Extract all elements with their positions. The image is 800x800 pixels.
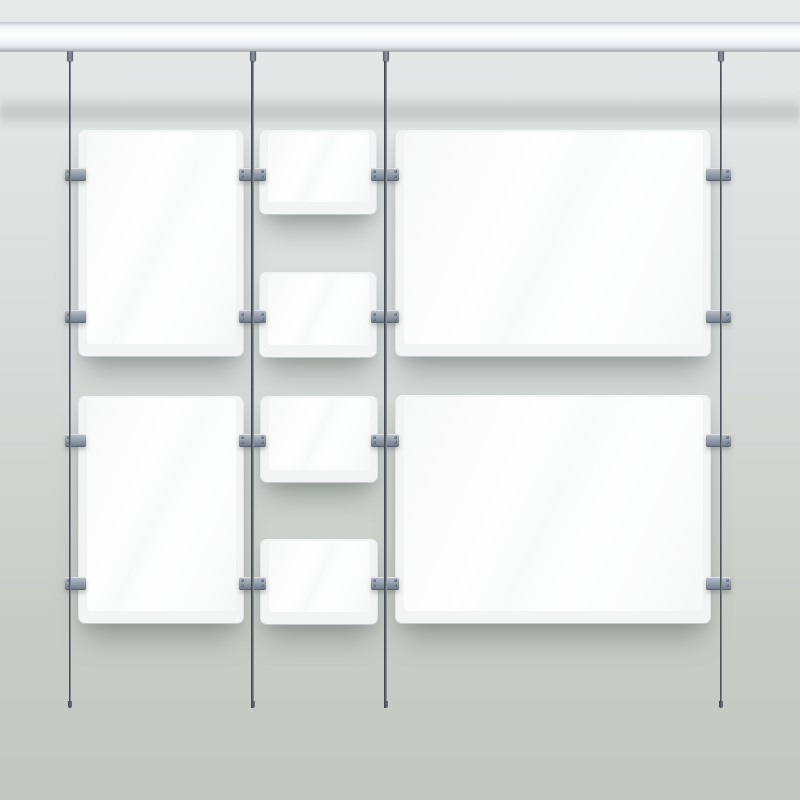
clamp-bolt xyxy=(726,318,729,321)
poster-sheet xyxy=(269,541,370,612)
clamp-bolt xyxy=(261,441,264,444)
poster-panel-left-portrait-top xyxy=(78,130,245,357)
clamp-bolt xyxy=(373,170,376,173)
poster-panel-right-landscape-top xyxy=(395,130,712,357)
clamp-bolt xyxy=(373,318,376,321)
rod-end-cap xyxy=(719,701,723,708)
rod-top-fitting xyxy=(383,50,389,61)
clamp-bolt xyxy=(394,175,397,178)
clamp-bolt xyxy=(394,436,397,439)
poster-sheet xyxy=(404,397,704,611)
clamp-bolt xyxy=(241,170,244,173)
suspension-rod xyxy=(384,50,387,708)
clamp-bolt xyxy=(241,318,244,321)
rod-end-cap xyxy=(68,701,72,708)
clamp-bolt xyxy=(241,313,244,316)
poster-sheet xyxy=(268,132,369,202)
clamp-bolt xyxy=(394,170,397,173)
poster-panel-center-small-3 xyxy=(260,396,378,483)
poster-panel-center-small-2 xyxy=(259,272,377,359)
clamp-bolt xyxy=(261,318,264,321)
clamp-bolt xyxy=(261,170,264,173)
clamp-bolt xyxy=(726,313,729,316)
suspension-rod xyxy=(69,50,72,708)
suspension-rod xyxy=(720,50,723,708)
clamp-bolt xyxy=(261,436,264,439)
clamp-bolt xyxy=(373,175,376,178)
clamp-bolt xyxy=(394,584,397,587)
poster-sheet xyxy=(269,398,370,470)
clamp-bolt xyxy=(261,313,264,316)
clamp-bolt xyxy=(726,436,729,439)
poster-panel-right-landscape-bottom xyxy=(395,395,712,624)
clamp-bolt xyxy=(394,579,397,582)
clamp-bolt xyxy=(261,175,264,178)
rod-top-fitting xyxy=(250,50,256,61)
poster-sheet xyxy=(87,132,237,344)
clamp-bolt xyxy=(373,579,376,582)
clamp-bolt xyxy=(373,436,376,439)
rod-clamp xyxy=(706,434,731,447)
clamp-bolt xyxy=(261,579,264,582)
rod-top-fitting xyxy=(718,50,724,61)
rod-clamp xyxy=(706,168,731,181)
ceiling-rail xyxy=(0,22,800,51)
clamp-bolt xyxy=(394,318,397,321)
suspension-rod xyxy=(251,50,254,708)
poster-sheet xyxy=(268,274,369,346)
clamp-bolt xyxy=(373,441,376,444)
clamp-bolt xyxy=(373,313,376,316)
clamp-bolt xyxy=(726,579,729,582)
clamp-bolt xyxy=(726,175,729,178)
clamp-bolt xyxy=(373,584,376,587)
rail-shadow-band xyxy=(0,95,800,128)
clamp-bolt xyxy=(726,584,729,587)
rod-clamp xyxy=(706,577,731,590)
clamp-bolt xyxy=(241,436,244,439)
poster-panel-center-small-4 xyxy=(260,539,378,625)
poster-panel-left-portrait-bottom xyxy=(78,396,245,624)
rod-clamp xyxy=(706,310,731,323)
clamp-bolt xyxy=(726,441,729,444)
clamp-bolt xyxy=(241,584,244,587)
rod-top-fitting xyxy=(67,50,73,61)
rod-end-cap xyxy=(251,701,255,708)
poster-sheet xyxy=(404,132,704,344)
clamp-bolt xyxy=(394,441,397,444)
clamp-bolt xyxy=(241,175,244,178)
clamp-bolt xyxy=(241,579,244,582)
clamp-bolt xyxy=(241,441,244,444)
poster-sheet xyxy=(87,398,237,611)
display-wall-scene xyxy=(0,0,800,800)
clamp-bolt xyxy=(394,313,397,316)
poster-panel-center-small-1 xyxy=(259,130,377,215)
clamp-bolt xyxy=(726,170,729,173)
clamp-bolt xyxy=(261,584,264,587)
rod-end-cap xyxy=(384,701,388,708)
